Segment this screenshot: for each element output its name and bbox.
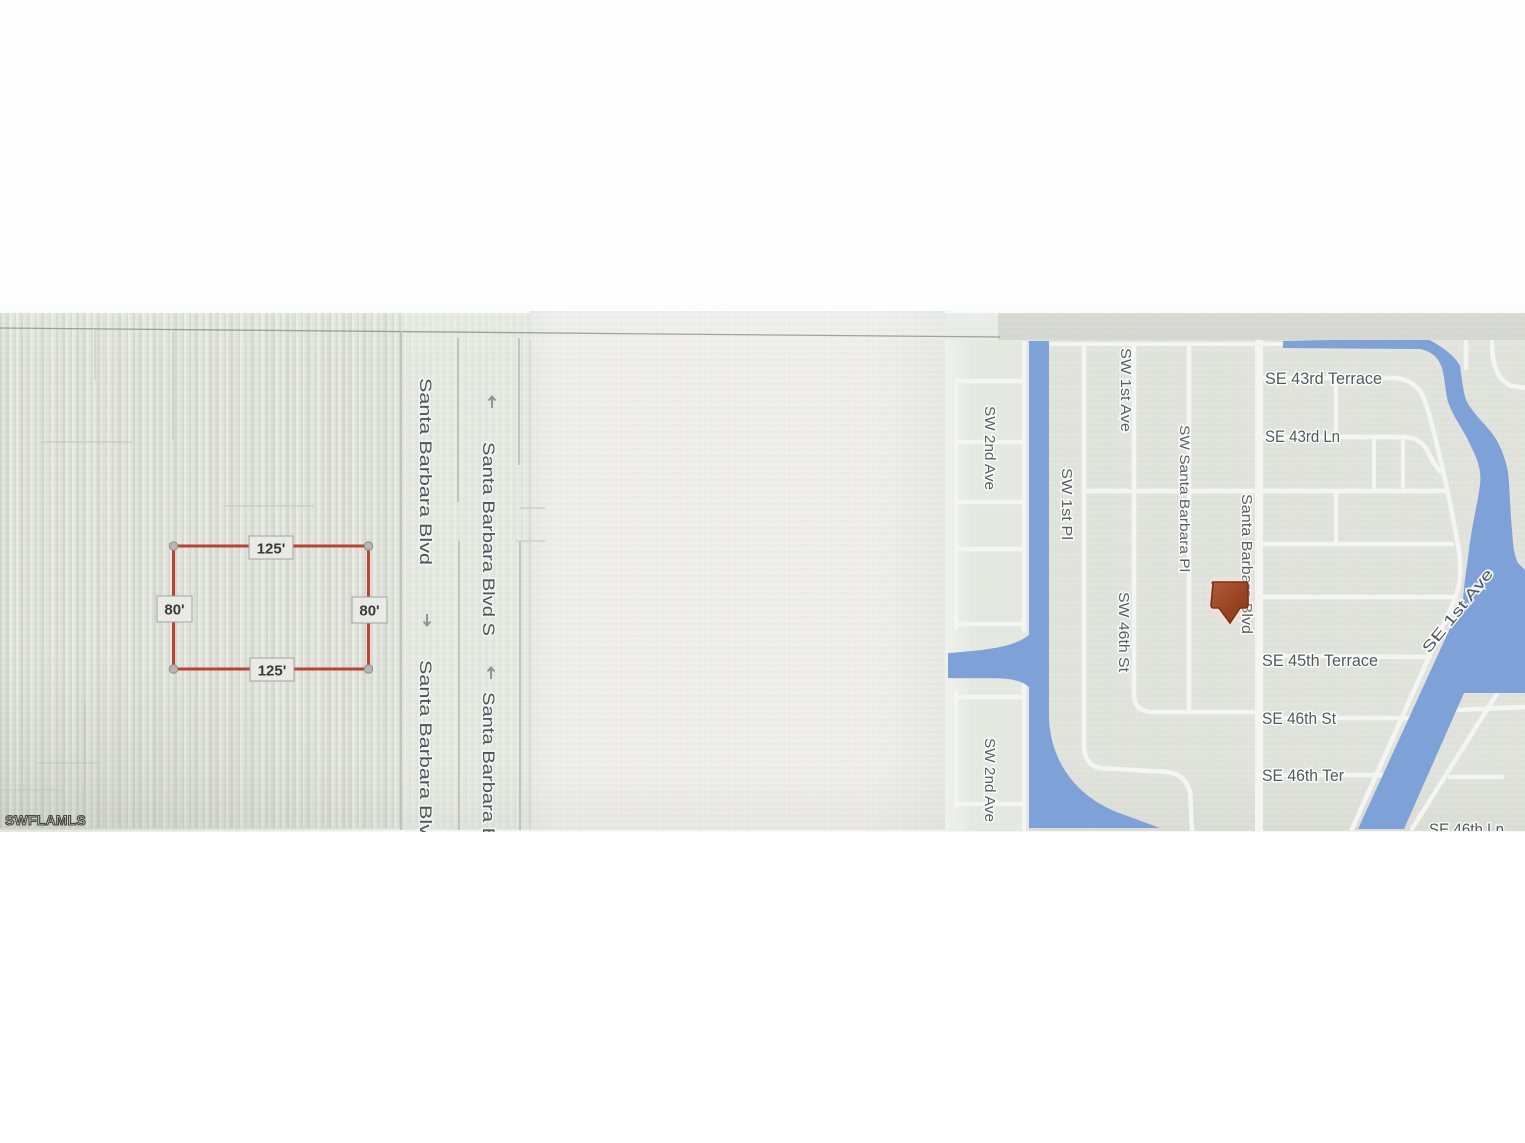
svg-text:SW 1st Pl: SW 1st Pl [1058,468,1074,540]
svg-text:125': 125' [258,663,287,680]
svg-text:80': 80' [164,602,184,619]
svg-text:Santa Barbara Blvd: Santa Barbara Blvd [1238,494,1254,634]
svg-text:SE 43rd Ln: SE 43rd Ln [1265,427,1340,446]
svg-text:80': 80' [359,603,379,620]
svg-text:SWFLAMLS: SWFLAMLS [5,812,86,828]
svg-text:SW 2nd Ave: SW 2nd Ave [981,406,997,490]
svg-text:SE 46th St: SE 46th St [1262,709,1336,728]
svg-text:Santa Barbara Blvd: Santa Barbara Blvd [416,378,435,565]
svg-text:Santa Barbara Blvd: Santa Barbara Blvd [416,660,435,847]
svg-text:SW 2nd Ave: SW 2nd Ave [981,738,997,822]
svg-text:125': 125' [257,541,286,558]
svg-text:SW 46th St: SW 46th St [1115,592,1131,672]
svg-text:SE 45th Terrace: SE 45th Terrace [1262,651,1378,670]
svg-text:SE 46th Ter: SE 46th Ter [1262,766,1344,785]
svg-text:SW Santa Barbara Pl: SW Santa Barbara Pl [1177,425,1193,572]
svg-text:SW 1st Ave: SW 1st Ave [1117,348,1133,432]
svg-text:SE 43rd Terrace: SE 43rd Terrace [1265,369,1382,388]
svg-text:Santa Barbara Blvd S: Santa Barbara Blvd S [479,442,498,636]
